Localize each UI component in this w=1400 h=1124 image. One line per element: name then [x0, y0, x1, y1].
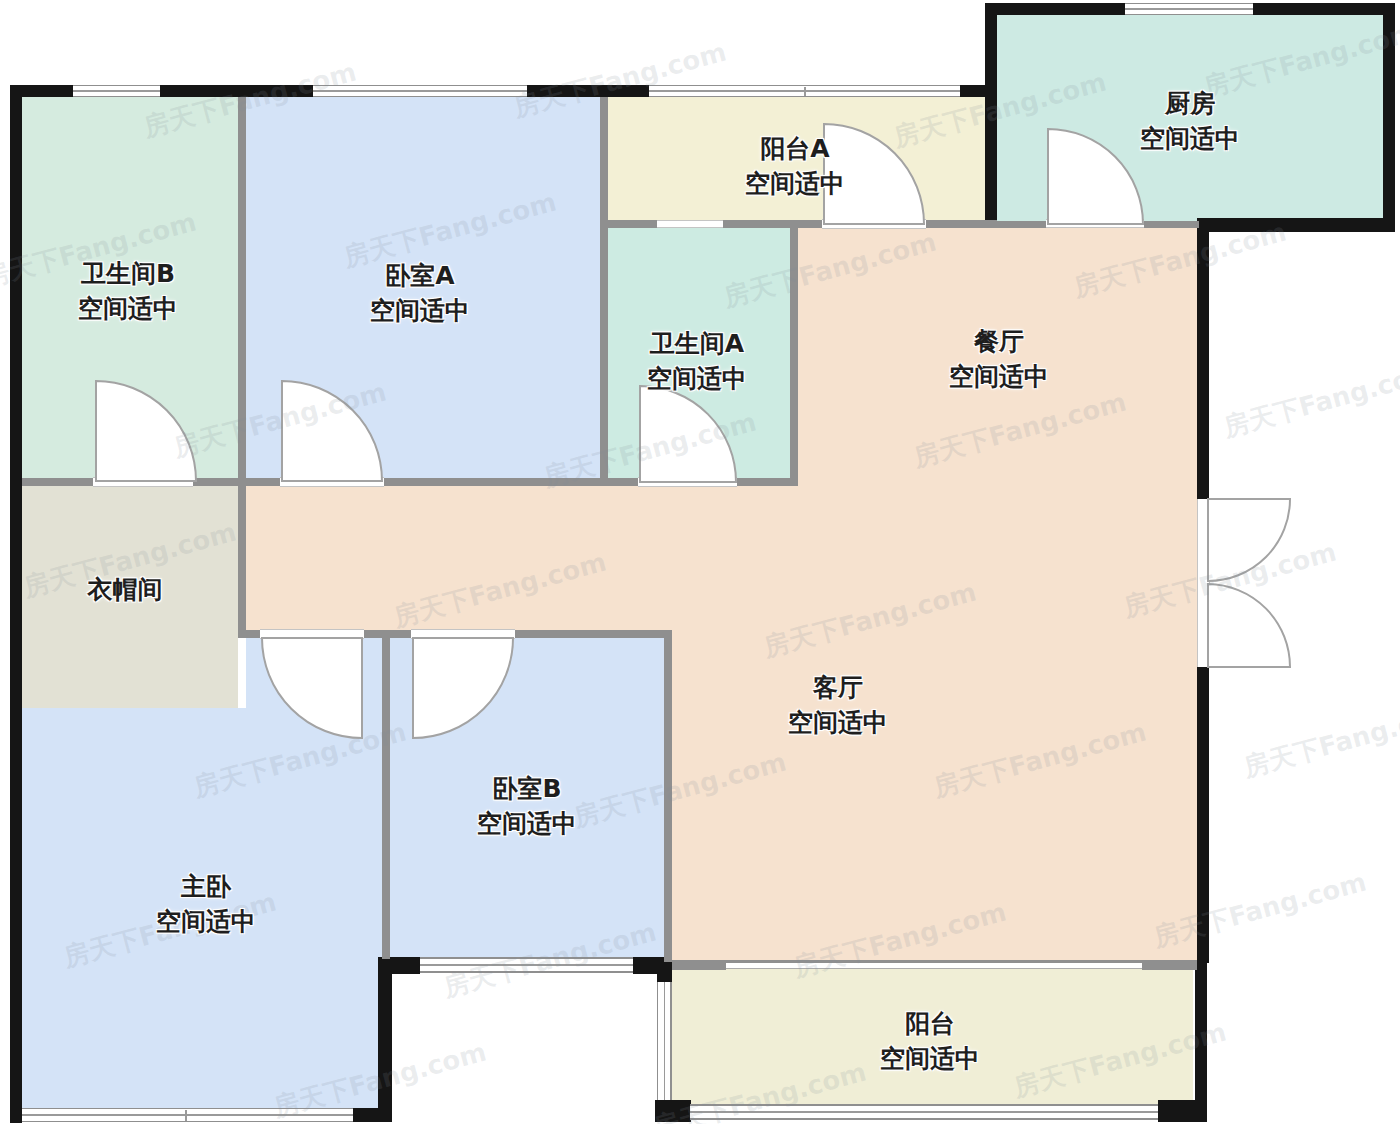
- room-label-living: 客厅 空间适中: [788, 671, 888, 740]
- room-name: 卫生间B: [78, 257, 178, 292]
- room-status: 空间适中: [1140, 121, 1240, 156]
- room-label-bathroom-b: 卫生间B 空间适中: [78, 257, 178, 326]
- door-master-bedroom: [262, 638, 362, 738]
- room-label-dining: 餐厅 空间适中: [949, 325, 1049, 394]
- room-label-balcony: 阳台 空间适中: [880, 1007, 980, 1076]
- room-name: 卧室B: [477, 772, 577, 807]
- room-status: 空间适中: [156, 904, 256, 939]
- door-kitchen: [1048, 129, 1143, 224]
- room-label-bedroom-a: 卧室A 空间适中: [370, 259, 470, 328]
- room-label-kitchen: 厨房 空间适中: [1140, 87, 1240, 156]
- room-label-master: 主卧 空间适中: [156, 870, 256, 939]
- room-status: 空间适中: [78, 291, 178, 326]
- room-status: 空间适中: [370, 293, 470, 328]
- room-status: 空间适中: [745, 166, 845, 201]
- room-status: 空间适中: [880, 1041, 980, 1076]
- room-name: 阳台: [880, 1007, 980, 1042]
- door-entry-lower: [1208, 584, 1290, 667]
- room-name: 衣帽间: [88, 573, 163, 608]
- door-bedroom-a: [282, 381, 382, 481]
- door-bathroom-b: [96, 381, 196, 481]
- room-label-cloakroom: 衣帽间: [88, 573, 163, 608]
- floor-plan: 卫生间B 空间适中 卧室A 空间适中 阳台A 空间适中 厨房 空间适中 卫生间A…: [0, 0, 1400, 1124]
- room-name: 主卧: [156, 870, 256, 905]
- room-status: 空间适中: [647, 361, 747, 396]
- room-name: 厨房: [1140, 87, 1240, 122]
- room-name: 餐厅: [949, 325, 1049, 360]
- doors-overlay: [0, 0, 1400, 1124]
- room-name: 阳台A: [745, 132, 845, 167]
- room-name: 卫生间A: [647, 327, 747, 362]
- door-bedroom-b: [413, 638, 513, 738]
- room-name: 客厅: [788, 671, 888, 706]
- room-label-balcony-a: 阳台A 空间适中: [745, 132, 845, 201]
- room-status: 空间适中: [788, 705, 888, 740]
- room-status: 空间适中: [949, 359, 1049, 394]
- door-bathroom-a: [640, 386, 736, 482]
- room-label-bedroom-b: 卧室B 空间适中: [477, 772, 577, 841]
- room-status: 空间适中: [477, 806, 577, 841]
- room-label-bathroom-a: 卫生间A 空间适中: [647, 327, 747, 396]
- room-name: 卧室A: [370, 259, 470, 294]
- door-entry-upper: [1208, 499, 1290, 581]
